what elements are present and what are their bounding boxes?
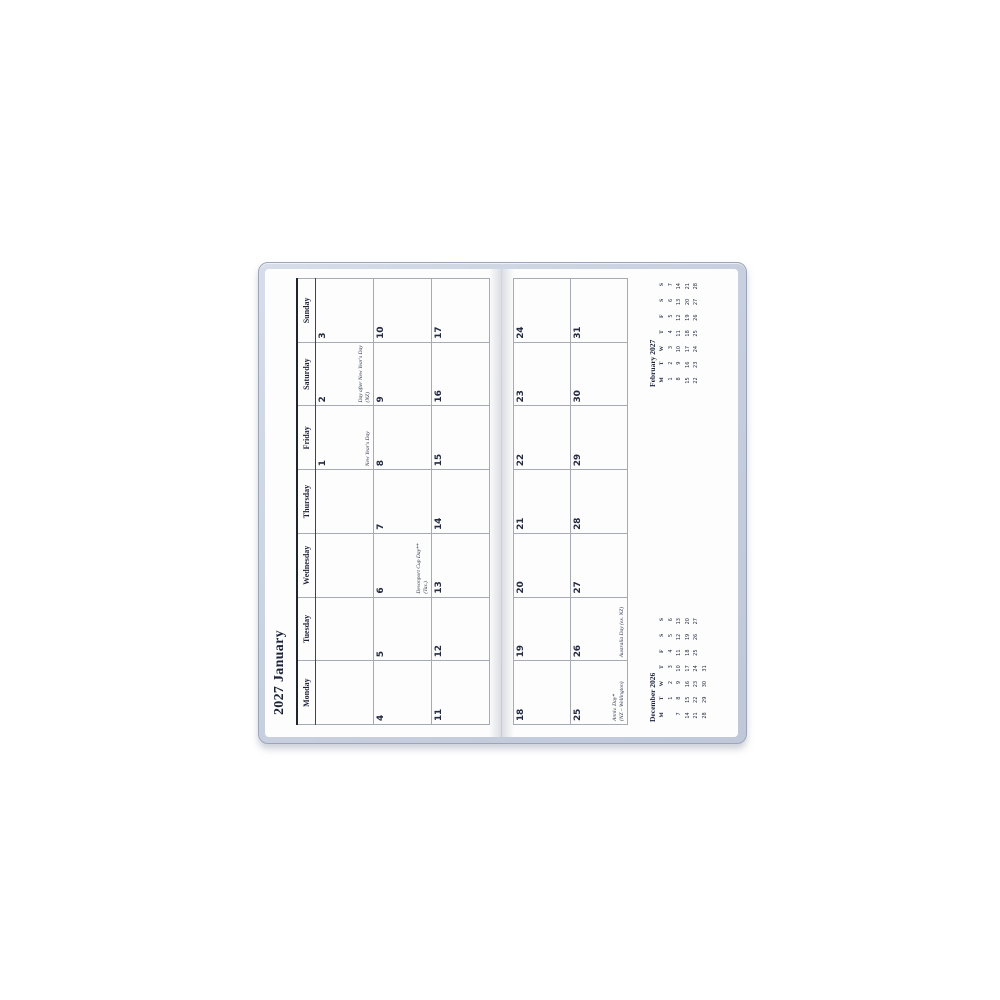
mini-day-cell: 19 <box>684 629 693 645</box>
day-cell: 24 <box>514 279 571 343</box>
mini-day-cell: 21 <box>684 278 693 294</box>
mini-day-cell: 15 <box>684 372 693 388</box>
mini-dow-cell: T <box>658 325 667 341</box>
mini-dow-cell: T <box>658 692 667 708</box>
holiday-note: Devonport Cup Day**(Tas.) <box>416 543 429 593</box>
mini-day-cell: 19 <box>684 309 693 325</box>
day-cell: 22 <box>514 406 571 470</box>
mini-day-cell: 7 <box>667 278 676 294</box>
week-row: 18192021222324 <box>514 279 571 725</box>
day-number: 2 <box>316 343 328 406</box>
mini-dow-cell: F <box>658 644 667 660</box>
mini-day-cell: 24 <box>692 341 701 357</box>
mini-day-cell: 5 <box>667 629 676 645</box>
right-page-content: 1819202122232425Anniv. Day*(NZ – Welling… <box>502 269 738 737</box>
weekday-header: Thursday <box>297 470 316 534</box>
weekday-header: Friday <box>297 406 316 470</box>
mini-dow-cell: T <box>658 357 667 373</box>
day-number <box>316 470 318 533</box>
mini-week-row: 1234567 <box>667 278 676 388</box>
weekday-header-row: MondayTuesdayWednesdayThursdayFridaySatu… <box>297 279 316 725</box>
day-number: 25 <box>571 661 583 724</box>
mini-dow-cell: S <box>658 278 667 294</box>
holiday-note: Anniv. Day*(NZ – Wellington) <box>612 681 625 721</box>
mini-calendar-grid: MTWTFSS123456789101112131415161718192021… <box>658 278 701 388</box>
mini-week-row: 123456 <box>667 613 676 723</box>
day-cell: 21 <box>514 470 571 534</box>
mini-day-cell: 16 <box>684 357 693 373</box>
mini-day-cell: 9 <box>675 357 684 373</box>
mini-day-cell: 14 <box>675 278 684 294</box>
mini-day-cell: 25 <box>692 325 701 341</box>
mini-dow-cell: T <box>658 660 667 676</box>
mini-day-cell: 1 <box>667 372 676 388</box>
day-number: 21 <box>514 470 526 533</box>
day-cell: 2Day after New Year's Day(NZ) <box>316 342 374 406</box>
holiday-note-line: (NZ) <box>365 345 371 402</box>
mini-day-cell: 25 <box>692 644 701 660</box>
day-number: 16 <box>432 343 444 406</box>
weekday-header: Tuesday <box>297 597 316 661</box>
day-number: 27 <box>571 534 583 597</box>
mini-week-row: 22232425262728 <box>692 278 701 388</box>
day-number: 26 <box>571 598 583 661</box>
week-row: 1New Year's Day2Day after New Year's Day… <box>316 279 374 725</box>
day-cell: 3 <box>316 279 374 343</box>
day-cell: 30 <box>571 342 628 406</box>
mini-dow-cell: F <box>658 309 667 325</box>
mini-day-cell: 2 <box>667 676 676 692</box>
day-number: 8 <box>374 406 386 469</box>
day-cell: 1New Year's Day <box>316 406 374 470</box>
day-number: 3 <box>316 279 328 342</box>
holiday-note-line: New Year's Day <box>365 431 371 466</box>
day-number: 4 <box>374 661 386 724</box>
day-cell: 4 <box>374 661 432 725</box>
mini-day-cell: 23 <box>692 357 701 373</box>
day-number: 31 <box>571 279 583 342</box>
day-cell: 11 <box>432 661 490 725</box>
month-grid-right: 1819202122232425Anniv. Day*(NZ – Welling… <box>513 278 628 725</box>
day-cell: 9 <box>374 342 432 406</box>
mini-day-cell: 8 <box>675 692 684 708</box>
day-cell: 13 <box>432 533 490 597</box>
day-cell: 10 <box>374 279 432 343</box>
mini-dow-cell: S <box>658 294 667 310</box>
day-cell: 6Devonport Cup Day**(Tas.) <box>374 533 432 597</box>
day-number: 7 <box>374 470 386 533</box>
day-number: 14 <box>432 470 444 533</box>
mini-day-cell: 17 <box>684 660 693 676</box>
day-cell: 15 <box>432 406 490 470</box>
day-cell: 20 <box>514 533 571 597</box>
mini-day-cell: 27 <box>692 294 701 310</box>
scene: 2027 January MondayTuesdayWednesdayThurs… <box>0 0 1000 1000</box>
planner-booklet: 2027 January MondayTuesdayWednesdayThurs… <box>258 262 747 744</box>
mini-week-row: 14151617181920 <box>684 613 693 723</box>
right-page: 1819202122232425Anniv. Day*(NZ – Welling… <box>502 269 738 737</box>
day-cell: 17 <box>432 279 490 343</box>
mini-day-cell: 1 <box>667 692 676 708</box>
day-cell: 23 <box>514 342 571 406</box>
holiday-note: New Year's Day <box>365 431 371 466</box>
day-cell: 28 <box>571 470 628 534</box>
day-cell <box>316 470 374 534</box>
holiday-note-line: Australia Day (ex. NZ) <box>619 607 625 657</box>
day-number <box>316 661 318 724</box>
mini-day-cell: 30 <box>701 676 710 692</box>
mini-day-cell <box>701 644 710 660</box>
mini-week-row: 21222324252627 <box>692 613 701 723</box>
holiday-note-line: Day after New Year's Day <box>358 345 364 402</box>
mini-day-cell: 16 <box>684 676 693 692</box>
mini-day-cell: 2 <box>667 357 676 373</box>
mini-day-cell: 11 <box>675 644 684 660</box>
mini-day-cell: 14 <box>684 707 693 723</box>
mini-day-cell: 4 <box>667 325 676 341</box>
day-number: 12 <box>432 598 444 661</box>
mini-day-cell: 13 <box>675 294 684 310</box>
mini-day-cell: 28 <box>701 707 710 723</box>
day-cell: 16 <box>432 342 490 406</box>
day-number <box>316 598 318 661</box>
day-number: 5 <box>374 598 386 661</box>
mini-dow-cell: M <box>658 372 667 388</box>
day-number: 17 <box>432 279 444 342</box>
day-number: 6 <box>374 534 386 597</box>
day-cell: 26Australia Day (ex. NZ) <box>571 597 628 661</box>
mini-day-cell: 10 <box>675 341 684 357</box>
mini-day-cell: 20 <box>684 613 693 629</box>
mini-day-cell: 17 <box>684 341 693 357</box>
mini-calendar-grid: MTWTFSS123456789101112131415161718192021… <box>658 613 709 723</box>
mini-day-cell: 8 <box>675 372 684 388</box>
mini-day-cell: 20 <box>684 294 693 310</box>
mini-dow-row: MTWTFSS <box>658 278 667 388</box>
day-number: 9 <box>374 343 386 406</box>
mini-day-cell: 3 <box>667 341 676 357</box>
mini-dow-cell: W <box>658 676 667 692</box>
day-number: 23 <box>514 343 526 406</box>
day-number: 20 <box>514 534 526 597</box>
mini-day-cell: 26 <box>692 629 701 645</box>
weekday-header: Monday <box>297 661 316 725</box>
mini-day-cell: 6 <box>667 294 676 310</box>
mini-week-row: 891011121314 <box>675 278 684 388</box>
mini-day-cell: 29 <box>701 692 710 708</box>
day-number: 22 <box>514 406 526 469</box>
mini-day-cell: 13 <box>675 613 684 629</box>
day-cell: 18 <box>514 661 571 725</box>
day-cell <box>316 533 374 597</box>
mini-day-cell: 10 <box>675 660 684 676</box>
holiday-note-line: (Tas.) <box>423 543 429 593</box>
mini-day-cell: 22 <box>692 692 701 708</box>
left-page: 2027 January MondayTuesdayWednesdayThurs… <box>265 269 501 737</box>
holiday-note: Australia Day (ex. NZ) <box>619 607 625 657</box>
mini-week-row: 15161718192021 <box>684 278 693 388</box>
day-cell <box>316 597 374 661</box>
day-number: 18 <box>514 661 526 724</box>
day-number <box>316 534 318 597</box>
mini-day-cell: 26 <box>692 309 701 325</box>
mini-dow-cell: W <box>658 341 667 357</box>
mini-calendar-december: December 2026 MTWTFSS1234567891011121314… <box>648 613 709 723</box>
mini-day-cell: 23 <box>692 676 701 692</box>
mini-calendar-title: February 2027 <box>648 278 657 387</box>
month-grid-left: MondayTuesdayWednesdayThursdayFridaySatu… <box>296 278 490 725</box>
holiday-note-line: (NZ – Wellington) <box>619 681 625 721</box>
day-number: 13 <box>432 534 444 597</box>
day-number: 28 <box>571 470 583 533</box>
mini-day-cell: 18 <box>684 325 693 341</box>
mini-day-cell: 3 <box>667 660 676 676</box>
mini-day-cell: 5 <box>667 309 676 325</box>
mini-dow-cell: S <box>658 629 667 645</box>
day-cell: 7 <box>374 470 432 534</box>
day-number: 30 <box>571 343 583 406</box>
week-row: 25Anniv. Day*(NZ – Wellington)26Australi… <box>571 279 628 725</box>
day-cell: 19 <box>514 597 571 661</box>
day-cell: 25Anniv. Day*(NZ – Wellington) <box>571 661 628 725</box>
mini-day-cell <box>667 707 676 723</box>
mini-day-cell: 15 <box>684 692 693 708</box>
mini-week-row: 28293031 <box>701 613 710 723</box>
holiday-note-line: Devonport Cup Day** <box>416 543 422 593</box>
day-cell: 8 <box>374 406 432 470</box>
weekday-header: Wednesday <box>297 533 316 597</box>
day-number: 29 <box>571 406 583 469</box>
weekday-header: Saturday <box>297 342 316 406</box>
mini-day-cell: 12 <box>675 629 684 645</box>
day-number: 1 <box>316 406 328 469</box>
mini-day-cell: 28 <box>692 278 701 294</box>
day-cell: 12 <box>432 597 490 661</box>
mini-dow-cell: S <box>658 613 667 629</box>
mini-dow-row: MTWTFSS <box>658 613 667 723</box>
mini-day-cell: 12 <box>675 309 684 325</box>
mini-day-cell: 24 <box>692 660 701 676</box>
mini-day-cell: 11 <box>675 325 684 341</box>
mini-day-cell: 9 <box>675 676 684 692</box>
day-cell: 5 <box>374 597 432 661</box>
mini-calendar-title: December 2026 <box>648 613 657 722</box>
holiday-note: Day after New Year's Day(NZ) <box>358 345 371 402</box>
day-number: 24 <box>514 279 526 342</box>
mini-week-row: 78910111213 <box>675 613 684 723</box>
day-cell: 29 <box>571 406 628 470</box>
month-title: 2027 January <box>272 630 288 715</box>
mini-day-cell: 31 <box>701 660 710 676</box>
day-cell <box>316 661 374 725</box>
mini-day-cell: 7 <box>675 707 684 723</box>
day-number: 10 <box>374 279 386 342</box>
mini-dow-cell: M <box>658 707 667 723</box>
day-cell: 14 <box>432 470 490 534</box>
weekday-header: Sunday <box>297 279 316 343</box>
mini-calendar-february: February 2027 MTWTFSS1234567891011121314… <box>648 278 701 388</box>
left-page-content: 2027 January MondayTuesdayWednesdayThurs… <box>265 269 501 737</box>
mini-day-cell: 6 <box>667 613 676 629</box>
mini-day-cell: 18 <box>684 644 693 660</box>
week-row: 456Devonport Cup Day**(Tas.)78910 <box>374 279 432 725</box>
day-cell: 31 <box>571 279 628 343</box>
weekday-header-row-inner: MondayTuesdayWednesdayThursdayFridaySatu… <box>297 279 316 725</box>
mini-day-cell <box>701 613 710 629</box>
day-cell: 27 <box>571 533 628 597</box>
mini-day-cell: 22 <box>692 372 701 388</box>
mini-day-cell <box>701 629 710 645</box>
mini-day-cell: 21 <box>692 707 701 723</box>
day-number: 15 <box>432 406 444 469</box>
week-row: 11121314151617 <box>432 279 490 725</box>
mini-day-cell: 4 <box>667 644 676 660</box>
day-number: 19 <box>514 598 526 661</box>
day-number: 11 <box>432 661 444 724</box>
mini-day-cell: 27 <box>692 613 701 629</box>
